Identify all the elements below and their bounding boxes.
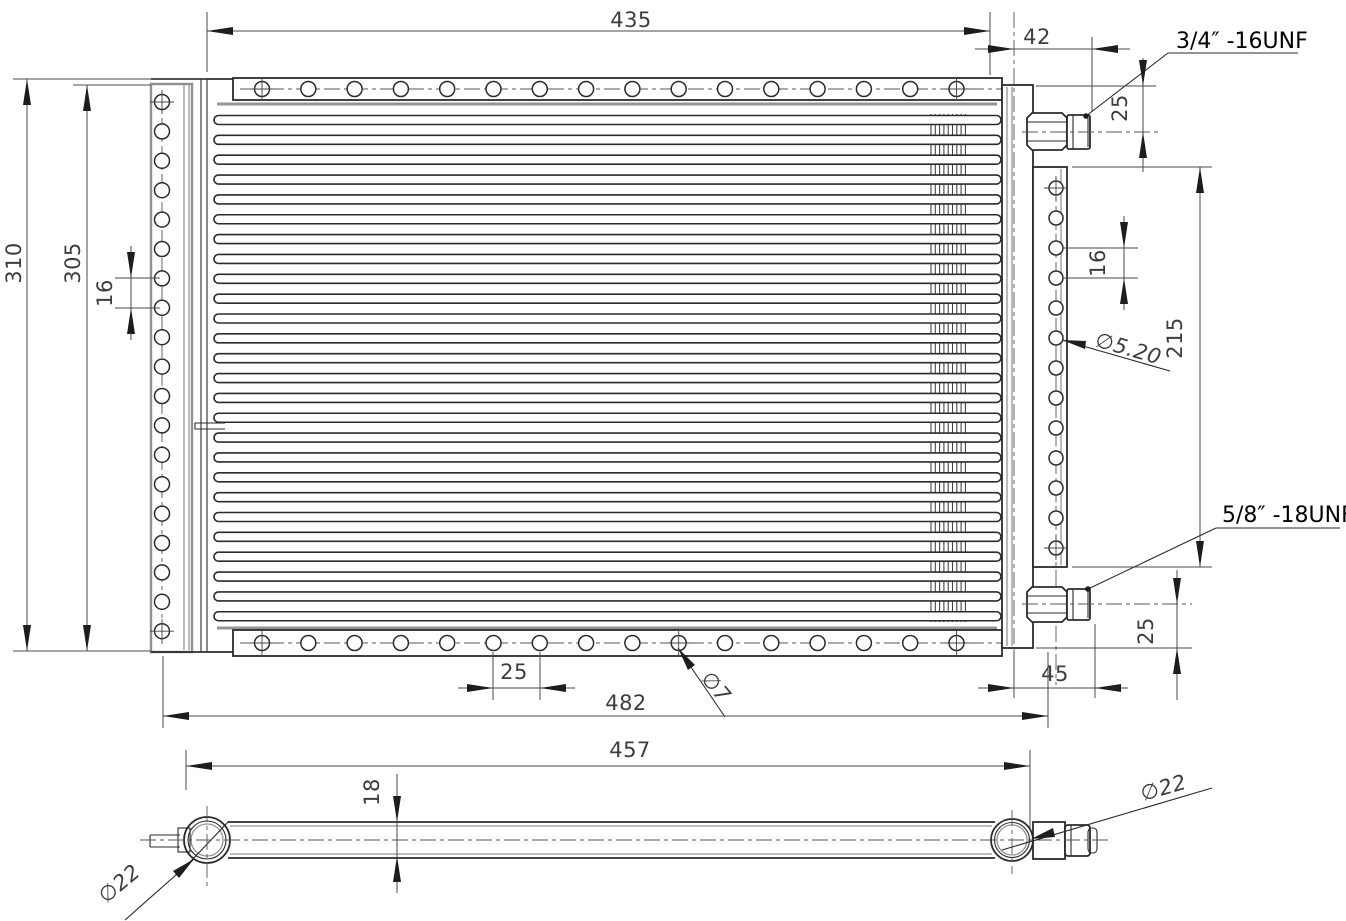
mounting-hole xyxy=(856,82,871,97)
front-view: 435 42 3/4″ -16UNF xyxy=(2,8,1346,728)
dim-core-height: 305 xyxy=(61,85,151,651)
mounting-hole xyxy=(1049,331,1063,345)
side-right-header xyxy=(140,810,1110,874)
core-tube xyxy=(214,612,1001,621)
dim-right-hole-pitch: 16 xyxy=(1064,216,1138,310)
dim-fitting-offset-bottom-label: 45 xyxy=(1041,662,1069,686)
side-left-header xyxy=(150,806,230,888)
mounting-hole xyxy=(718,82,733,97)
mounting-hole xyxy=(903,636,918,651)
core-tubes xyxy=(214,116,1001,621)
core-tube xyxy=(214,175,1001,184)
mounting-hole xyxy=(155,594,170,609)
core-tube xyxy=(214,235,1001,244)
dim-fitting-offset-top-label: 42 xyxy=(1023,25,1051,49)
core-tube xyxy=(214,334,1001,343)
mounting-hole xyxy=(625,82,640,97)
dim-right-bracket-height-label: 215 xyxy=(1163,317,1187,359)
mounting-hole xyxy=(155,536,170,551)
mounting-hole xyxy=(1049,451,1063,465)
core-tube xyxy=(214,493,1001,502)
dim-tube-length: 457 xyxy=(186,738,1030,828)
dim-width-top-label: 435 xyxy=(610,8,652,32)
mounting-hole xyxy=(856,636,871,651)
dim-core-thickness: 18 xyxy=(360,774,401,893)
side-view: 457 18 ∅22 ∅22 xyxy=(94,738,1212,920)
mounting-hole xyxy=(625,636,640,651)
dim-mounting-width: 482 xyxy=(163,652,1048,728)
mounting-hole xyxy=(301,82,316,97)
dim-fitting-bottom-drop-label: 25 xyxy=(1134,617,1158,645)
top-fitting xyxy=(1022,113,1160,150)
core-tube xyxy=(214,354,1001,363)
mounting-hole xyxy=(486,636,501,651)
mounting-hole xyxy=(155,242,170,257)
left-header-dia-label: ∅22 xyxy=(94,860,145,908)
core-tube xyxy=(214,374,1001,383)
mounting-hole xyxy=(155,565,170,580)
core-tube xyxy=(214,413,1001,422)
dim-overall-height-label: 310 xyxy=(2,242,26,284)
mounting-hole xyxy=(155,359,170,374)
mounting-hole xyxy=(810,82,825,97)
dim-bottom-hole-pitch-label: 25 xyxy=(500,660,528,684)
mounting-hole xyxy=(155,212,170,227)
core-tube xyxy=(214,433,1001,442)
mounting-hole xyxy=(347,636,362,651)
dim-bottom-hole-pitch: 25 xyxy=(458,652,575,700)
bottom-fitting-hex xyxy=(1027,587,1067,622)
mounting-hole xyxy=(903,82,918,97)
core-tube xyxy=(214,215,1001,224)
bottom-fitting xyxy=(1022,587,1192,622)
dim-right-hole-pitch-label: 16 xyxy=(1086,249,1110,277)
mounting-hole xyxy=(532,636,547,651)
mounting-hole xyxy=(718,636,733,651)
dim-tube-length-label: 457 xyxy=(609,738,651,762)
mounting-hole xyxy=(301,636,316,651)
mounting-hole xyxy=(1049,421,1063,435)
core-tube xyxy=(214,135,1001,144)
mounting-hole xyxy=(155,153,170,168)
leader-dot xyxy=(1083,113,1089,119)
mounting-hole xyxy=(1049,211,1063,225)
dim-width-top: 435 xyxy=(207,8,990,75)
core-tube xyxy=(214,592,1001,601)
dim-right-bracket-height: 215 xyxy=(1072,167,1212,567)
mounting-hole xyxy=(764,82,779,97)
mounting-hole xyxy=(155,183,170,198)
mounting-hole xyxy=(393,636,408,651)
core-tube xyxy=(214,314,1001,323)
mounting-hole xyxy=(393,82,408,97)
condenser-drawing: 435 42 3/4″ -16UNF xyxy=(0,0,1346,921)
mounting-hole xyxy=(486,82,501,97)
label-right-hole-dia: ∅5.20 xyxy=(1062,328,1170,371)
mounting-hole xyxy=(1049,271,1063,285)
mounting-hole xyxy=(764,636,779,651)
core-tube xyxy=(214,393,1001,402)
mounting-hole xyxy=(440,82,455,97)
mounting-hole xyxy=(1049,301,1063,315)
right-hole-dia-label: ∅5.20 xyxy=(1093,328,1165,370)
mounting-hole xyxy=(440,636,455,651)
mounting-hole xyxy=(155,124,170,139)
dim-mounting-width-label: 482 xyxy=(605,691,647,715)
mounting-hole xyxy=(1049,391,1063,405)
bottom-plate xyxy=(217,628,1002,656)
right-header-dia-label: ∅22 xyxy=(1138,770,1189,806)
core-tube xyxy=(214,195,1001,204)
mounting-hole xyxy=(155,447,170,462)
mounting-hole xyxy=(1049,511,1063,525)
core-fins xyxy=(931,114,965,622)
technical-drawing-canvas: 435 42 3/4″ -16UNF xyxy=(0,0,1346,921)
top-plate xyxy=(217,77,1002,104)
label-right-header-dia: ∅22 xyxy=(1002,770,1212,850)
label-left-header-dia: ∅22 xyxy=(94,859,194,920)
core-tube xyxy=(214,254,1001,263)
core-tube xyxy=(214,274,1001,283)
dim-left-hole-pitch-label: 16 xyxy=(93,279,117,307)
mounting-hole xyxy=(671,82,686,97)
core-tube xyxy=(214,155,1001,164)
fitting-top-thread-label: 3/4″ -16UNF xyxy=(1176,29,1308,54)
top-fitting-hex xyxy=(1027,113,1067,150)
bottom-hole-dia-label: ∅7 xyxy=(696,667,735,708)
fitting-bottom-thread-label: 5/8″ -18UNF xyxy=(1222,503,1346,528)
mounting-hole xyxy=(532,82,547,97)
label-bottom-hole-dia: ∅7 xyxy=(678,648,736,717)
mounting-hole xyxy=(579,82,594,97)
label-fitting-bottom: 5/8″ -18UNF xyxy=(1085,503,1346,592)
right-header-tank xyxy=(1002,12,1033,660)
core-tube xyxy=(214,572,1001,581)
mounting-hole xyxy=(155,418,170,433)
core-tube xyxy=(214,532,1001,541)
dim-fitting-top-drop-label: 25 xyxy=(1108,94,1132,122)
mounting-hole xyxy=(155,330,170,345)
core-tube xyxy=(214,473,1001,482)
dim-core-thickness-label: 18 xyxy=(360,778,384,806)
dim-overall-height: 310 xyxy=(2,79,207,651)
mounting-hole xyxy=(347,82,362,97)
mounting-hole xyxy=(1049,241,1063,255)
mounting-hole xyxy=(810,636,825,651)
leader-dot xyxy=(1085,586,1091,592)
core-tube xyxy=(214,294,1001,303)
mounting-hole xyxy=(1049,361,1063,375)
mounting-hole xyxy=(155,477,170,492)
side-right-fitting xyxy=(1033,822,1097,859)
bottom-fitting-cap xyxy=(1067,589,1090,620)
mounting-hole xyxy=(155,506,170,521)
side-plate-tab xyxy=(195,423,225,429)
mounting-hole xyxy=(155,389,170,404)
core-tube xyxy=(214,552,1001,561)
core-tube xyxy=(214,116,1001,125)
mounting-hole xyxy=(579,636,594,651)
core-tube xyxy=(214,513,1001,522)
mounting-hole xyxy=(1049,481,1063,495)
dim-core-height-label: 305 xyxy=(61,242,85,284)
core-tube xyxy=(214,453,1001,462)
